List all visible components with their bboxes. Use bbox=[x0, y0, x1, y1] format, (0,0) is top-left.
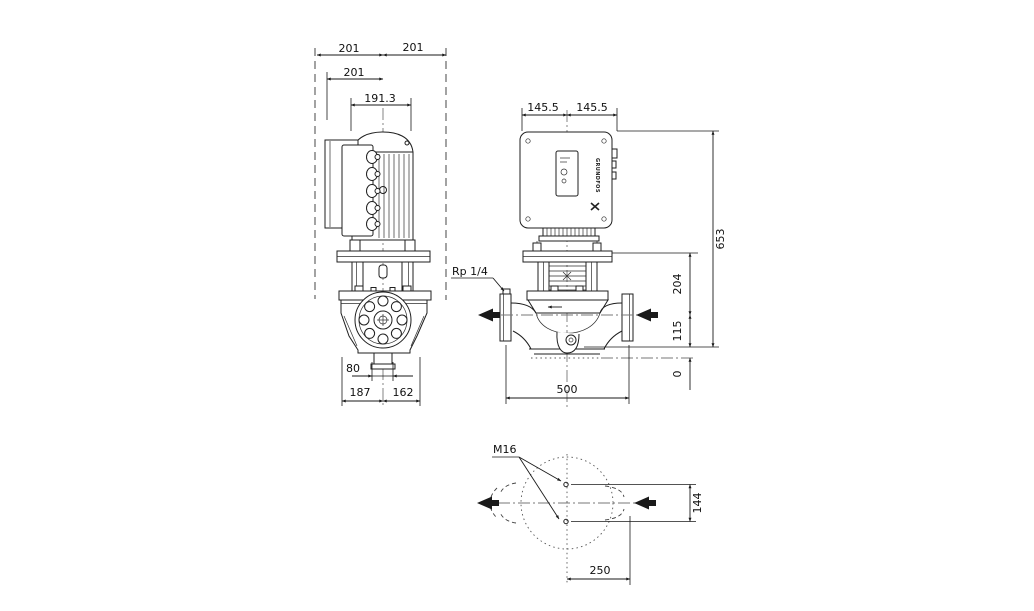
port-label: Rp 1/4 bbox=[452, 265, 488, 278]
dim-flange-to-port: 204 bbox=[671, 274, 684, 295]
dim-terminal-box: 201 bbox=[344, 66, 365, 79]
dim-total-left: 201 bbox=[339, 42, 360, 55]
motor-foot-right bbox=[405, 240, 415, 251]
dim-half-left: 145.5 bbox=[527, 101, 559, 114]
dim-base-right: 162 bbox=[393, 386, 414, 399]
dim-motor-width: 191.3 bbox=[364, 92, 396, 105]
round-flange bbox=[355, 292, 411, 348]
lantern-slot bbox=[379, 265, 387, 278]
drain-stub bbox=[374, 353, 392, 365]
discharge-flange bbox=[622, 294, 633, 341]
dim-total-right: 201 bbox=[403, 41, 424, 54]
dim-drain-port: 80 bbox=[346, 362, 360, 375]
dim-total-height: 653 bbox=[714, 229, 727, 250]
pump-dimensional-drawing: 201 201 201 191.3 80 187 162 bbox=[0, 0, 1034, 611]
side-motor: GRUNDFOS bbox=[520, 132, 617, 241]
dim-half-right: 145.5 bbox=[576, 101, 608, 114]
background bbox=[0, 0, 1034, 611]
dim-base-width: 500 bbox=[557, 383, 578, 396]
suction-flange bbox=[500, 294, 511, 341]
dim-datum-zero: 0 bbox=[671, 371, 684, 378]
dim-bolt-span: 144 bbox=[691, 493, 704, 514]
dim-base-left: 187 bbox=[350, 386, 371, 399]
pump-top-flange-side bbox=[527, 291, 608, 300]
dim-port-to-base: 115 bbox=[671, 321, 684, 342]
dim-offset: 250 bbox=[590, 564, 611, 577]
bolt-label: M16 bbox=[493, 443, 517, 456]
motor-foot-left bbox=[350, 240, 360, 251]
gauge-tapping-plug bbox=[503, 289, 510, 294]
brand-logotype: GRUNDFOS bbox=[594, 158, 600, 193]
drawing-canvas: 201 201 201 191.3 80 187 162 bbox=[0, 0, 1034, 611]
